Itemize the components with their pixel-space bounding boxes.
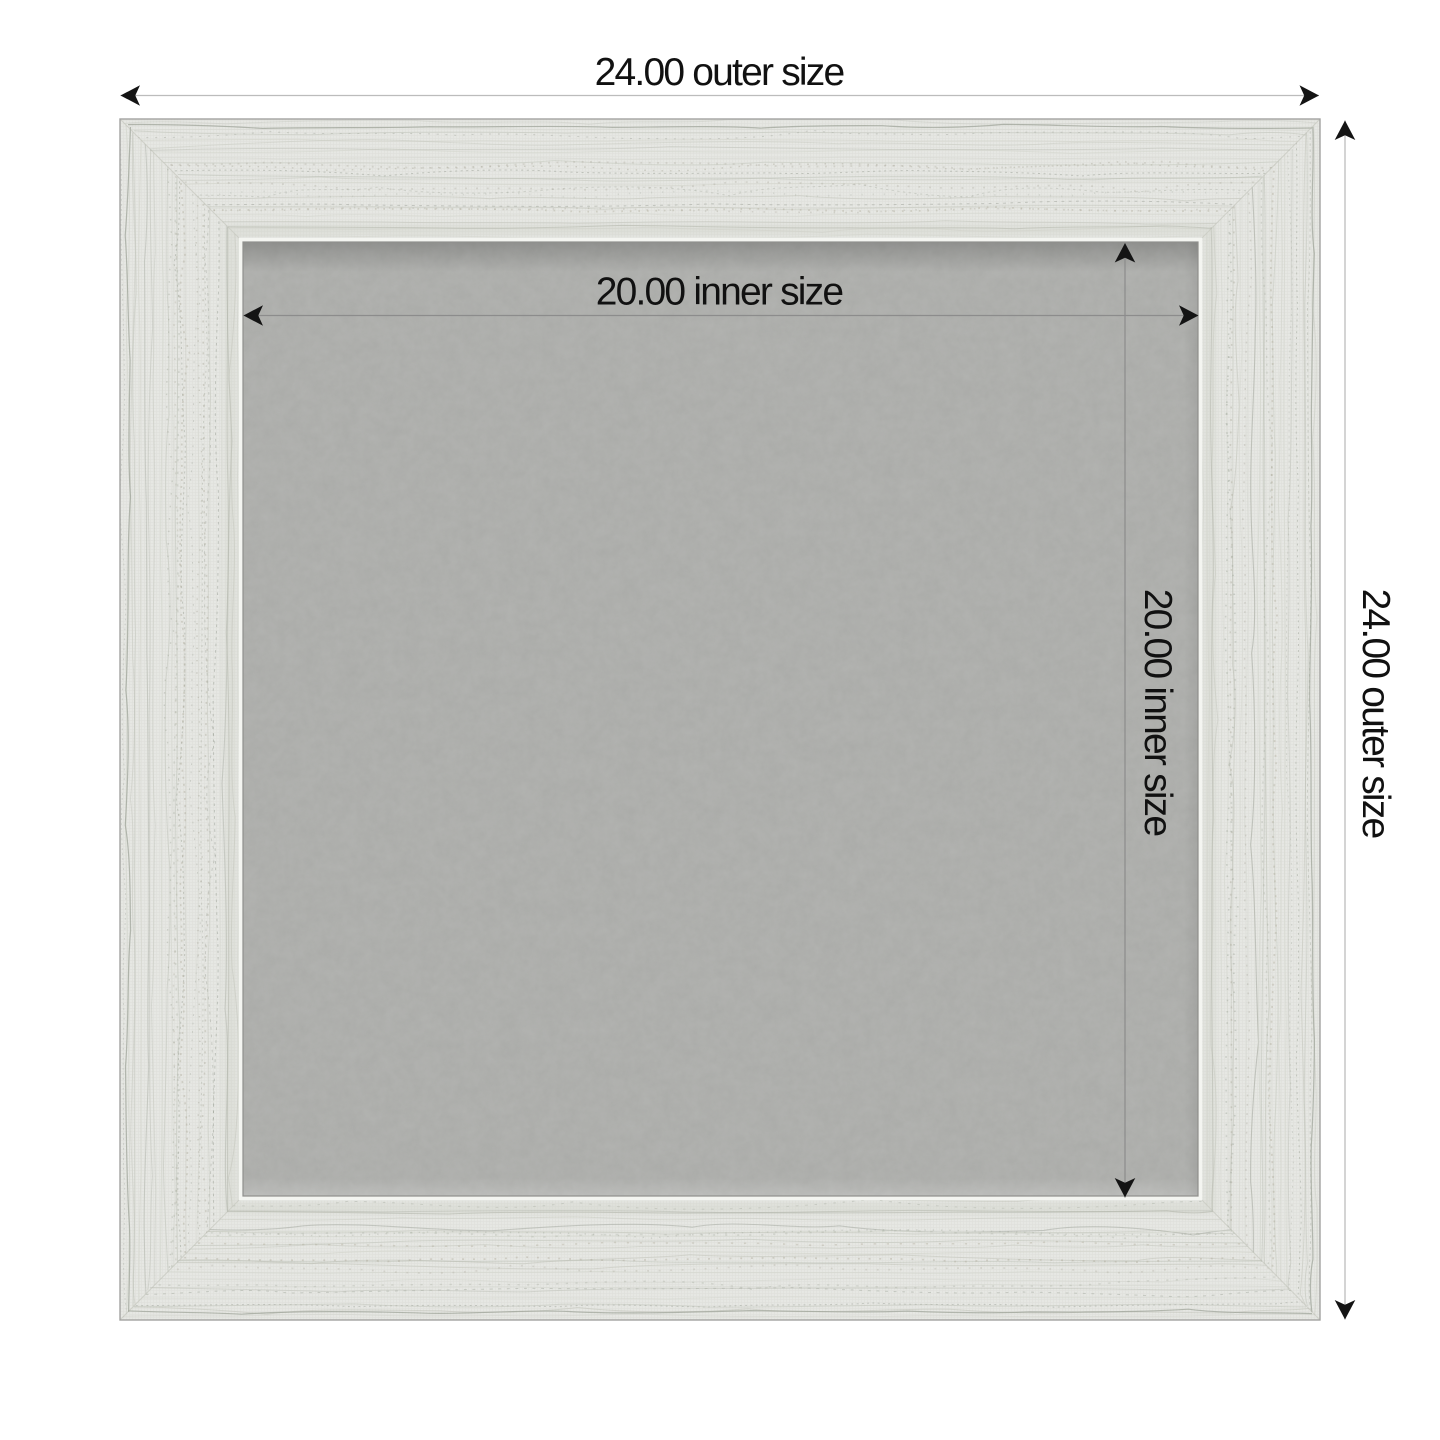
svg-text:24.00 outer size: 24.00 outer size <box>595 51 844 94</box>
svg-text:24.00 outer size: 24.00 outer size <box>1354 589 1397 838</box>
svg-text:20.00 inner size: 20.00 inner size <box>596 271 843 314</box>
svg-text:20.00 inner size: 20.00 inner size <box>1136 589 1179 836</box>
